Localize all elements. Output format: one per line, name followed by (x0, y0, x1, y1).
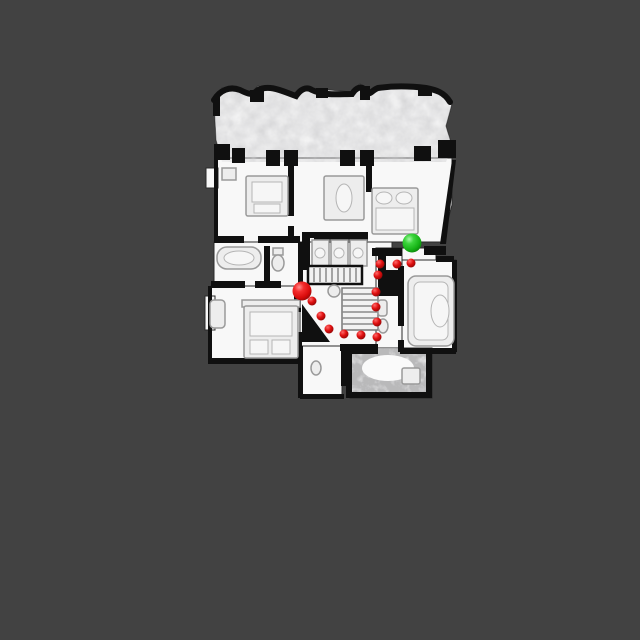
map-viewport (0, 0, 640, 640)
path-dot (374, 271, 383, 280)
path-dot (373, 318, 382, 327)
path-dot (340, 330, 349, 339)
path-dot (373, 333, 382, 342)
path-dot (357, 331, 366, 340)
path-dot (325, 325, 334, 334)
path-dot (372, 303, 381, 312)
path-dot (308, 297, 317, 306)
path-dot (376, 260, 385, 269)
path-dot (407, 259, 416, 268)
goal-marker (403, 234, 422, 253)
start-marker (293, 282, 312, 301)
topdown-map (0, 0, 640, 640)
path-dot (317, 312, 326, 321)
path-dot (372, 288, 381, 297)
path-dot (393, 260, 402, 269)
